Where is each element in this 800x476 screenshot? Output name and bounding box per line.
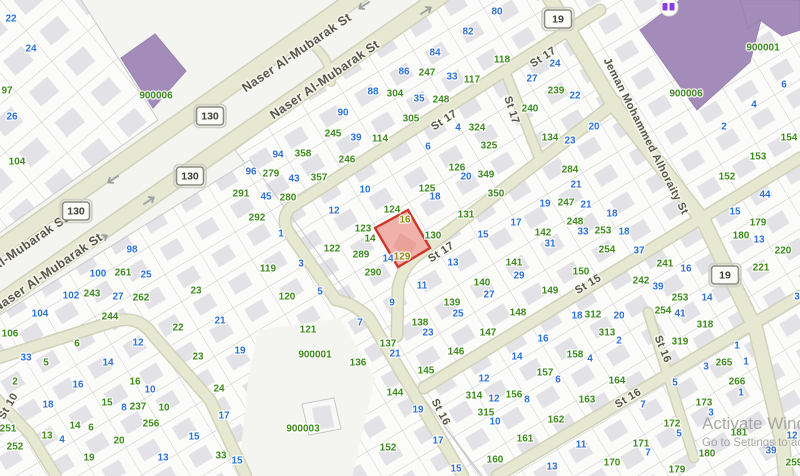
parcel-label-80[interactable]: 80 (491, 7, 503, 18)
parcel-label-7[interactable]: 7 (640, 400, 646, 411)
parcel-label-4[interactable]: 4 (587, 354, 593, 365)
parcel-label-3[interactable]: 3 (708, 408, 714, 419)
parcel-label-150[interactable]: 150 (573, 267, 590, 278)
parcel-label-21[interactable]: 21 (570, 180, 582, 191)
parcel-label-162[interactable]: 162 (548, 415, 565, 426)
parcel-label-180[interactable]: 180 (733, 231, 750, 242)
parcel-label-13[interactable]: 13 (157, 453, 169, 464)
parcel-label-279[interactable]: 279 (263, 169, 280, 180)
parcel-label-16[interactable]: 16 (537, 334, 549, 345)
parcel-label-13[interactable]: 13 (546, 462, 558, 473)
parcel-label-134[interactable]: 134 (542, 133, 559, 144)
parcel-label-6[interactable]: 6 (555, 375, 561, 386)
parcel-label-163[interactable]: 163 (579, 395, 596, 406)
parcel-label-164[interactable]: 164 (609, 376, 626, 387)
parcel-label-12[interactable]: 12 (132, 338, 144, 349)
parcel-label-82[interactable]: 82 (462, 27, 474, 38)
parcel-label-27[interactable]: 27 (483, 290, 495, 301)
parcel-label-254[interactable]: 254 (655, 306, 672, 317)
parcel-label-1[interactable]: 1 (734, 341, 740, 352)
parcel-label-180[interactable]: 180 (699, 449, 716, 460)
parcel-label-6[interactable]: 6 (88, 423, 94, 434)
parcel-label-33[interactable]: 33 (446, 72, 458, 83)
parcel-label-292[interactable]: 292 (249, 213, 266, 224)
parcel-label-146[interactable]: 146 (448, 347, 465, 358)
parcel-label-20[interactable]: 20 (113, 436, 125, 447)
parcel-label-144[interactable]: 144 (387, 388, 404, 399)
parcel-label-314[interactable]: 314 (466, 391, 483, 402)
parcel-label-14[interactable]: 14 (364, 234, 376, 245)
parcel-label-253[interactable]: 253 (672, 293, 689, 304)
parcel-label-10[interactable]: 10 (144, 385, 156, 396)
parcel-label-45[interactable]: 45 (260, 192, 272, 203)
parcel-label-3[interactable]: 3 (298, 259, 304, 270)
parcel-label-14[interactable]: 14 (511, 352, 523, 363)
parcel-label-90[interactable]: 90 (337, 108, 349, 119)
parcel-label-20[interactable]: 20 (613, 311, 625, 322)
parcel-label-256[interactable]: 256 (143, 419, 160, 430)
parcel-label-13[interactable]: 13 (753, 235, 765, 246)
parcel-label-900001[interactable]: 900001 (746, 43, 780, 54)
parcel-label-290[interactable]: 290 (365, 268, 382, 279)
parcel-label-358[interactable]: 358 (295, 149, 312, 160)
map-viewport: { "map": { "colors": { "background": "#f… (0, 0, 800, 476)
parcel-label-100[interactable]: 100 (90, 269, 107, 280)
parcel-label-18[interactable]: 18 (618, 227, 630, 238)
route-badge-130: 130 (60, 200, 92, 223)
parcel-label-157[interactable]: 157 (537, 368, 554, 379)
parcel-label-18[interactable]: 18 (429, 192, 441, 203)
parcel-label-266[interactable]: 266 (729, 377, 746, 388)
parcel-label-15[interactable]: 15 (188, 432, 200, 443)
parcel-label-88[interactable]: 88 (367, 87, 379, 98)
parcel-label-139[interactable]: 139 (444, 298, 461, 309)
parcel-label-24[interactable]: 24 (549, 59, 561, 70)
parcel-label-5[interactable]: 5 (317, 287, 323, 298)
parcel-label-33[interactable]: 33 (577, 227, 589, 238)
parcel-label-1[interactable]: 1 (738, 388, 744, 399)
parcel-label-312[interactable]: 312 (585, 310, 602, 321)
parcel-label-14[interactable]: 14 (69, 421, 81, 432)
parcel-label-12[interactable]: 12 (786, 431, 798, 442)
parcel-label-244[interactable]: 244 (102, 312, 119, 323)
parcel-label-5[interactable]: 5 (672, 378, 678, 389)
parcel-label-4[interactable]: 4 (59, 435, 65, 446)
parcel-label-179[interactable]: 179 (669, 465, 686, 476)
parcel-label-37[interactable]: 37 (633, 246, 645, 257)
parcel-label-17[interactable]: 17 (218, 411, 230, 422)
parcel-label-23[interactable]: 23 (422, 328, 434, 339)
parcel-label-102[interactable]: 102 (63, 291, 80, 302)
parcel-label-10[interactable]: 10 (489, 417, 501, 428)
svg-text:19: 19 (552, 14, 564, 26)
parcel-label-900006[interactable]: 900006 (139, 91, 173, 102)
parcel-label-247[interactable]: 247 (419, 68, 436, 79)
parcel-label-145[interactable]: 145 (418, 366, 435, 377)
parcel-label-39[interactable]: 39 (652, 282, 664, 293)
parcel-label-239[interactable]: 239 (548, 86, 565, 97)
parcel-label-27[interactable]: 27 (112, 292, 124, 303)
parcel-label-245[interactable]: 245 (325, 129, 342, 140)
parcel-label-25[interactable]: 25 (140, 270, 152, 281)
parcel-label-19[interactable]: 19 (83, 453, 95, 464)
parcel-label-129[interactable]: 129 (394, 252, 411, 263)
parcel-label-16[interactable]: 16 (680, 264, 692, 275)
parcel-label-39[interactable]: 39 (765, 446, 777, 457)
parcel-label-1[interactable]: 1 (278, 229, 284, 240)
parcel-label-265[interactable]: 265 (716, 358, 733, 369)
parcel-label-114[interactable]: 114 (372, 134, 389, 145)
map-canvas[interactable]: 2224972610490000688304902453911480828486… (0, 0, 800, 476)
parcel-label-152[interactable]: 152 (719, 172, 736, 183)
parcel-label-86[interactable]: 86 (398, 67, 410, 78)
parcel-label-19[interactable]: 19 (412, 405, 424, 416)
parcel-label-13[interactable]: 13 (447, 258, 459, 269)
parcel-label-18[interactable]: 18 (571, 311, 583, 322)
parcel-label-10[interactable]: 10 (158, 403, 170, 414)
parcel-label-21[interactable]: 21 (214, 316, 226, 327)
parcel-label-14[interactable]: 14 (701, 293, 713, 304)
parcel-label-7[interactable]: 7 (645, 448, 651, 459)
parcel-label-117[interactable]: 117 (464, 75, 481, 86)
parcel-label-325[interactable]: 325 (481, 141, 498, 152)
parcel-label-349[interactable]: 349 (478, 170, 495, 181)
parcel-label-237[interactable]: 237 (130, 402, 147, 413)
parcel-label-161[interactable]: 161 (517, 434, 534, 445)
parcel-label-104[interactable]: 104 (32, 309, 49, 320)
parcel-label-16[interactable]: 16 (129, 377, 141, 388)
parcel-label-121[interactable]: 121 (300, 325, 317, 336)
parcel-label-12[interactable]: 12 (328, 206, 340, 217)
parcel-label-97[interactable]: 97 (1, 86, 13, 97)
route-badge-130: 130 (194, 105, 226, 128)
parcel-label-24[interactable]: 24 (25, 44, 37, 55)
parcel-label-23[interactable]: 23 (192, 352, 204, 363)
parcel-label-147[interactable]: 147 (480, 328, 497, 339)
parcel-label-241[interactable]: 241 (657, 259, 674, 270)
parcel-label-119[interactable]: 119 (260, 264, 277, 275)
parcel-label-11[interactable]: 11 (576, 440, 587, 451)
parcel-label-324[interactable]: 324 (469, 123, 486, 134)
parcel-label-240[interactable]: 240 (522, 104, 539, 115)
parcel-label-141[interactable]: 141 (506, 258, 523, 269)
parcel-label-25[interactable]: 25 (452, 309, 464, 320)
parcel-label-10[interactable]: 10 (359, 185, 371, 196)
parcel-label-153[interactable]: 153 (750, 152, 767, 163)
parcel-label-122[interactable]: 122 (324, 244, 341, 255)
parcel-label-22[interactable]: 22 (172, 323, 184, 334)
parcel-label-18[interactable]: 18 (42, 400, 54, 411)
parcel-label-248[interactable]: 248 (433, 95, 450, 106)
parcel-label-14[interactable]: 14 (102, 358, 114, 369)
parcel-label-284[interactable]: 284 (562, 165, 579, 176)
parcel-label-33[interactable]: 33 (215, 451, 227, 462)
parcel-label-7[interactable]: 7 (357, 318, 363, 329)
parcel-label-261[interactable]: 261 (115, 268, 132, 279)
parcel-label-84[interactable]: 84 (429, 48, 441, 59)
parcel-label-124[interactable]: 124 (384, 205, 401, 216)
parcel-label-350[interactable]: 350 (488, 189, 505, 200)
parcel-label-181[interactable]: 181 (731, 428, 748, 439)
parcel-label-21[interactable]: 21 (580, 200, 592, 211)
parcel-label-220[interactable]: 220 (775, 246, 792, 257)
parcel-label-118[interactable]: 118 (494, 55, 511, 66)
parcel-label-17[interactable]: 17 (432, 436, 444, 447)
parcel-label-149[interactable]: 149 (542, 286, 559, 297)
parcel-label-131[interactable]: 131 (458, 210, 475, 221)
parcel-label-148[interactable]: 148 (510, 308, 527, 319)
parcel-label-5[interactable]: 5 (43, 358, 49, 369)
parcel-label-4[interactable]: 4 (751, 100, 757, 111)
parcel-label-900006[interactable]: 900006 (669, 89, 703, 100)
parcel-label-15[interactable]: 15 (477, 230, 489, 241)
parcel-label-242[interactable]: 242 (633, 276, 650, 287)
parcel-label-136[interactable]: 136 (350, 358, 367, 369)
parcel-label-154[interactable]: 154 (781, 133, 798, 144)
parcel-label-252[interactable]: 252 (7, 442, 24, 453)
parcel-label-130[interactable]: 130 (425, 231, 442, 242)
parcel-label-104[interactable]: 104 (9, 157, 26, 168)
parcel-label-4[interactable]: 4 (455, 123, 461, 134)
parcel-label-253[interactable]: 253 (595, 226, 612, 237)
parcel-label-17[interactable]: 17 (510, 218, 522, 229)
parcel-label-23[interactable]: 23 (190, 286, 202, 297)
parcel-label-246[interactable]: 246 (339, 155, 356, 166)
route-badge-19: 19 (542, 8, 574, 31)
parcel-label-8[interactable]: 8 (121, 403, 127, 414)
parcel-label-11[interactable]: 11 (417, 281, 428, 292)
parcel-label-179[interactable]: 179 (750, 218, 767, 229)
parcel-label-152[interactable]: 152 (380, 443, 397, 454)
parcel-label-170[interactable]: 170 (604, 458, 621, 469)
parcel-label-106[interactable]: 106 (2, 329, 19, 340)
parcel-label-12[interactable]: 12 (478, 374, 490, 385)
parcel-label-140[interactable]: 140 (474, 278, 491, 289)
parcel-label-156[interactable]: 156 (506, 390, 523, 401)
parcel-label-26[interactable]: 26 (6, 112, 18, 123)
parcel-label-319[interactable]: 319 (672, 337, 689, 348)
parcel-label-22[interactable]: 22 (569, 91, 581, 102)
parcel-label-21[interactable]: 21 (389, 349, 401, 360)
library-poi-icon[interactable] (660, 0, 678, 16)
parcel-label-19[interactable]: 19 (539, 199, 551, 210)
parcel-label-259[interactable]: 259 (786, 458, 800, 469)
parcel-label-2[interactable]: 2 (12, 377, 18, 388)
parcel-label-41[interactable]: 41 (674, 309, 686, 320)
parcel-label-16[interactable]: 16 (72, 380, 84, 391)
parcel-label-43[interactable]: 43 (288, 174, 300, 185)
parcel-label-3[interactable]: 3 (794, 292, 800, 303)
svg-text:130: 130 (67, 206, 85, 218)
parcel-label-20[interactable]: 20 (588, 122, 600, 133)
parcel-label-9[interactable]: 9 (389, 298, 395, 309)
parcel-label-313[interactable]: 313 (599, 328, 616, 339)
parcel-label-19[interactable]: 19 (234, 346, 246, 357)
parcel-label-289[interactable]: 289 (353, 250, 370, 261)
parcel-label-280[interactable]: 280 (280, 193, 297, 204)
svg-text:19: 19 (719, 270, 731, 282)
parcel-label-243[interactable]: 243 (84, 289, 101, 300)
parcel-label-44[interactable]: 44 (759, 190, 771, 201)
parcel-label-251[interactable]: 251 (0, 424, 17, 435)
parcel-label-35[interactable]: 35 (413, 94, 425, 105)
parcel-label-221[interactable]: 221 (753, 263, 770, 274)
parcel-label-6[interactable]: 6 (425, 142, 431, 153)
parcel-label-5[interactable]: 5 (676, 429, 682, 440)
parcel-label-18[interactable]: 18 (606, 209, 618, 220)
parcel-label-94[interactable]: 94 (272, 150, 284, 161)
route-badge-19: 19 (709, 264, 741, 287)
parcel-label-1[interactable]: 1 (743, 357, 749, 368)
parcel-label-900001[interactable]: 900001 (298, 350, 332, 361)
parcel-label-900003[interactable]: 900003 (286, 424, 320, 435)
parcel-label-15[interactable]: 15 (450, 464, 462, 475)
parcel-label-39[interactable]: 39 (350, 133, 362, 144)
parcel-label-262[interactable]: 262 (133, 293, 150, 304)
parcel-label-15[interactable]: 15 (729, 207, 741, 218)
parcel-label-304[interactable]: 304 (387, 89, 404, 100)
parcel-label-305[interactable]: 305 (403, 114, 420, 125)
parcel-label-158[interactable]: 158 (567, 350, 584, 361)
parcel-label-15[interactable]: 15 (101, 398, 113, 409)
parcel-label-96[interactable]: 96 (245, 167, 257, 178)
parcel-label-247[interactable]: 247 (558, 198, 575, 209)
parcel-label-8[interactable]: 8 (524, 395, 530, 406)
parcel-label-29[interactable]: 29 (513, 271, 525, 282)
parcel-label-291[interactable]: 291 (233, 189, 250, 200)
parcel-label-13[interactable]: 13 (41, 431, 53, 442)
parcel-label-3[interactable]: 3 (703, 362, 709, 373)
parcel-label-318[interactable]: 318 (697, 320, 714, 331)
parcel-label-14[interactable]: 14 (382, 254, 394, 265)
parcel-label-24[interactable]: 24 (213, 384, 225, 395)
parcel-label-98[interactable]: 98 (126, 245, 138, 256)
parcel-label-23[interactable]: 23 (564, 136, 576, 147)
parcel-label-33[interactable]: 33 (20, 353, 32, 364)
parcel-label-16[interactable]: 16 (399, 215, 411, 226)
parcel-label-22[interactable]: 22 (5, 14, 17, 25)
parcel-label-357[interactable]: 357 (311, 173, 328, 184)
parcel-label-27[interactable]: 27 (526, 74, 538, 85)
parcel-label-2[interactable]: 2 (721, 122, 727, 133)
parcel-label-2[interactable]: 2 (616, 336, 622, 347)
parcel-label-142[interactable]: 142 (535, 228, 552, 239)
parcel-label-31[interactable]: 31 (544, 239, 556, 250)
parcel-label-12[interactable]: 12 (488, 394, 500, 405)
parcel-label-20[interactable]: 20 (460, 172, 472, 183)
route-badge-130: 130 (174, 165, 206, 188)
parcel-label-6[interactable]: 6 (781, 80, 787, 91)
svg-text:130: 130 (181, 171, 199, 183)
parcel-label-15[interactable]: 15 (231, 456, 243, 467)
parcel-label-254[interactable]: 254 (599, 245, 616, 256)
svg-text:130: 130 (201, 111, 219, 123)
parcel-label-160[interactable]: 160 (487, 455, 504, 466)
parcel-label-120[interactable]: 120 (279, 292, 296, 303)
parcel-label-6[interactable]: 6 (74, 339, 80, 350)
